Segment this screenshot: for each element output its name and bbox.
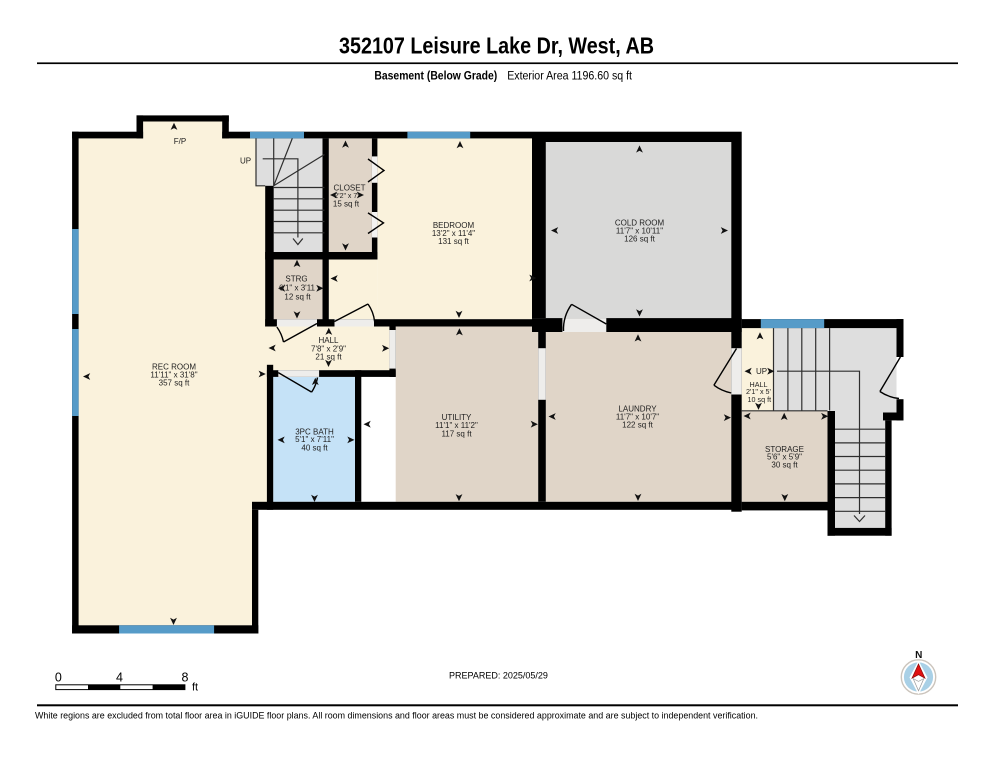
svg-text:122 sq ft: 122 sq ft xyxy=(622,420,653,429)
svg-text:131 sq ft: 131 sq ft xyxy=(438,237,469,246)
svg-text:6'1" x 3'11: 6'1" x 3'11 xyxy=(279,283,316,292)
svg-text:126 sq ft: 126 sq ft xyxy=(624,235,655,244)
svg-text:4: 4 xyxy=(116,670,123,684)
svg-text:10 sq ft: 10 sq ft xyxy=(748,395,772,404)
svg-text:N: N xyxy=(915,650,922,661)
svg-text:UP: UP xyxy=(756,367,767,376)
svg-text:White regions are excluded fro: White regions are excluded from total fl… xyxy=(35,711,758,721)
svg-text:40 sq ft: 40 sq ft xyxy=(301,443,328,452)
svg-text:357 sq ft: 357 sq ft xyxy=(159,378,190,387)
svg-text:352107 Leisure Lake Dr, West,: 352107 Leisure Lake Dr, West, AB xyxy=(339,33,654,59)
svg-text:30 sq ft: 30 sq ft xyxy=(771,461,798,470)
svg-text:UP: UP xyxy=(240,157,251,166)
svg-text:21 sq ft: 21 sq ft xyxy=(315,352,342,361)
svg-text:Basement (Below Grade): Basement (Below Grade) xyxy=(374,69,497,83)
svg-text:117 sq ft: 117 sq ft xyxy=(441,430,472,439)
svg-text:12 sq ft: 12 sq ft xyxy=(284,292,311,301)
svg-text:PREPARED: 2025/05/29: PREPARED: 2025/05/29 xyxy=(449,671,548,681)
svg-text:F/P: F/P xyxy=(174,137,186,146)
svg-text:15 sq ft: 15 sq ft xyxy=(333,199,360,208)
svg-text:0: 0 xyxy=(55,670,62,684)
svg-text:CLOSET: CLOSET xyxy=(333,183,365,192)
svg-text:ft: ft xyxy=(192,681,198,693)
svg-text:Exterior Area 1196.60 sq ft: Exterior Area 1196.60 sq ft xyxy=(507,69,632,83)
svg-text:STRG: STRG xyxy=(285,275,307,284)
svg-text:8: 8 xyxy=(182,670,189,684)
